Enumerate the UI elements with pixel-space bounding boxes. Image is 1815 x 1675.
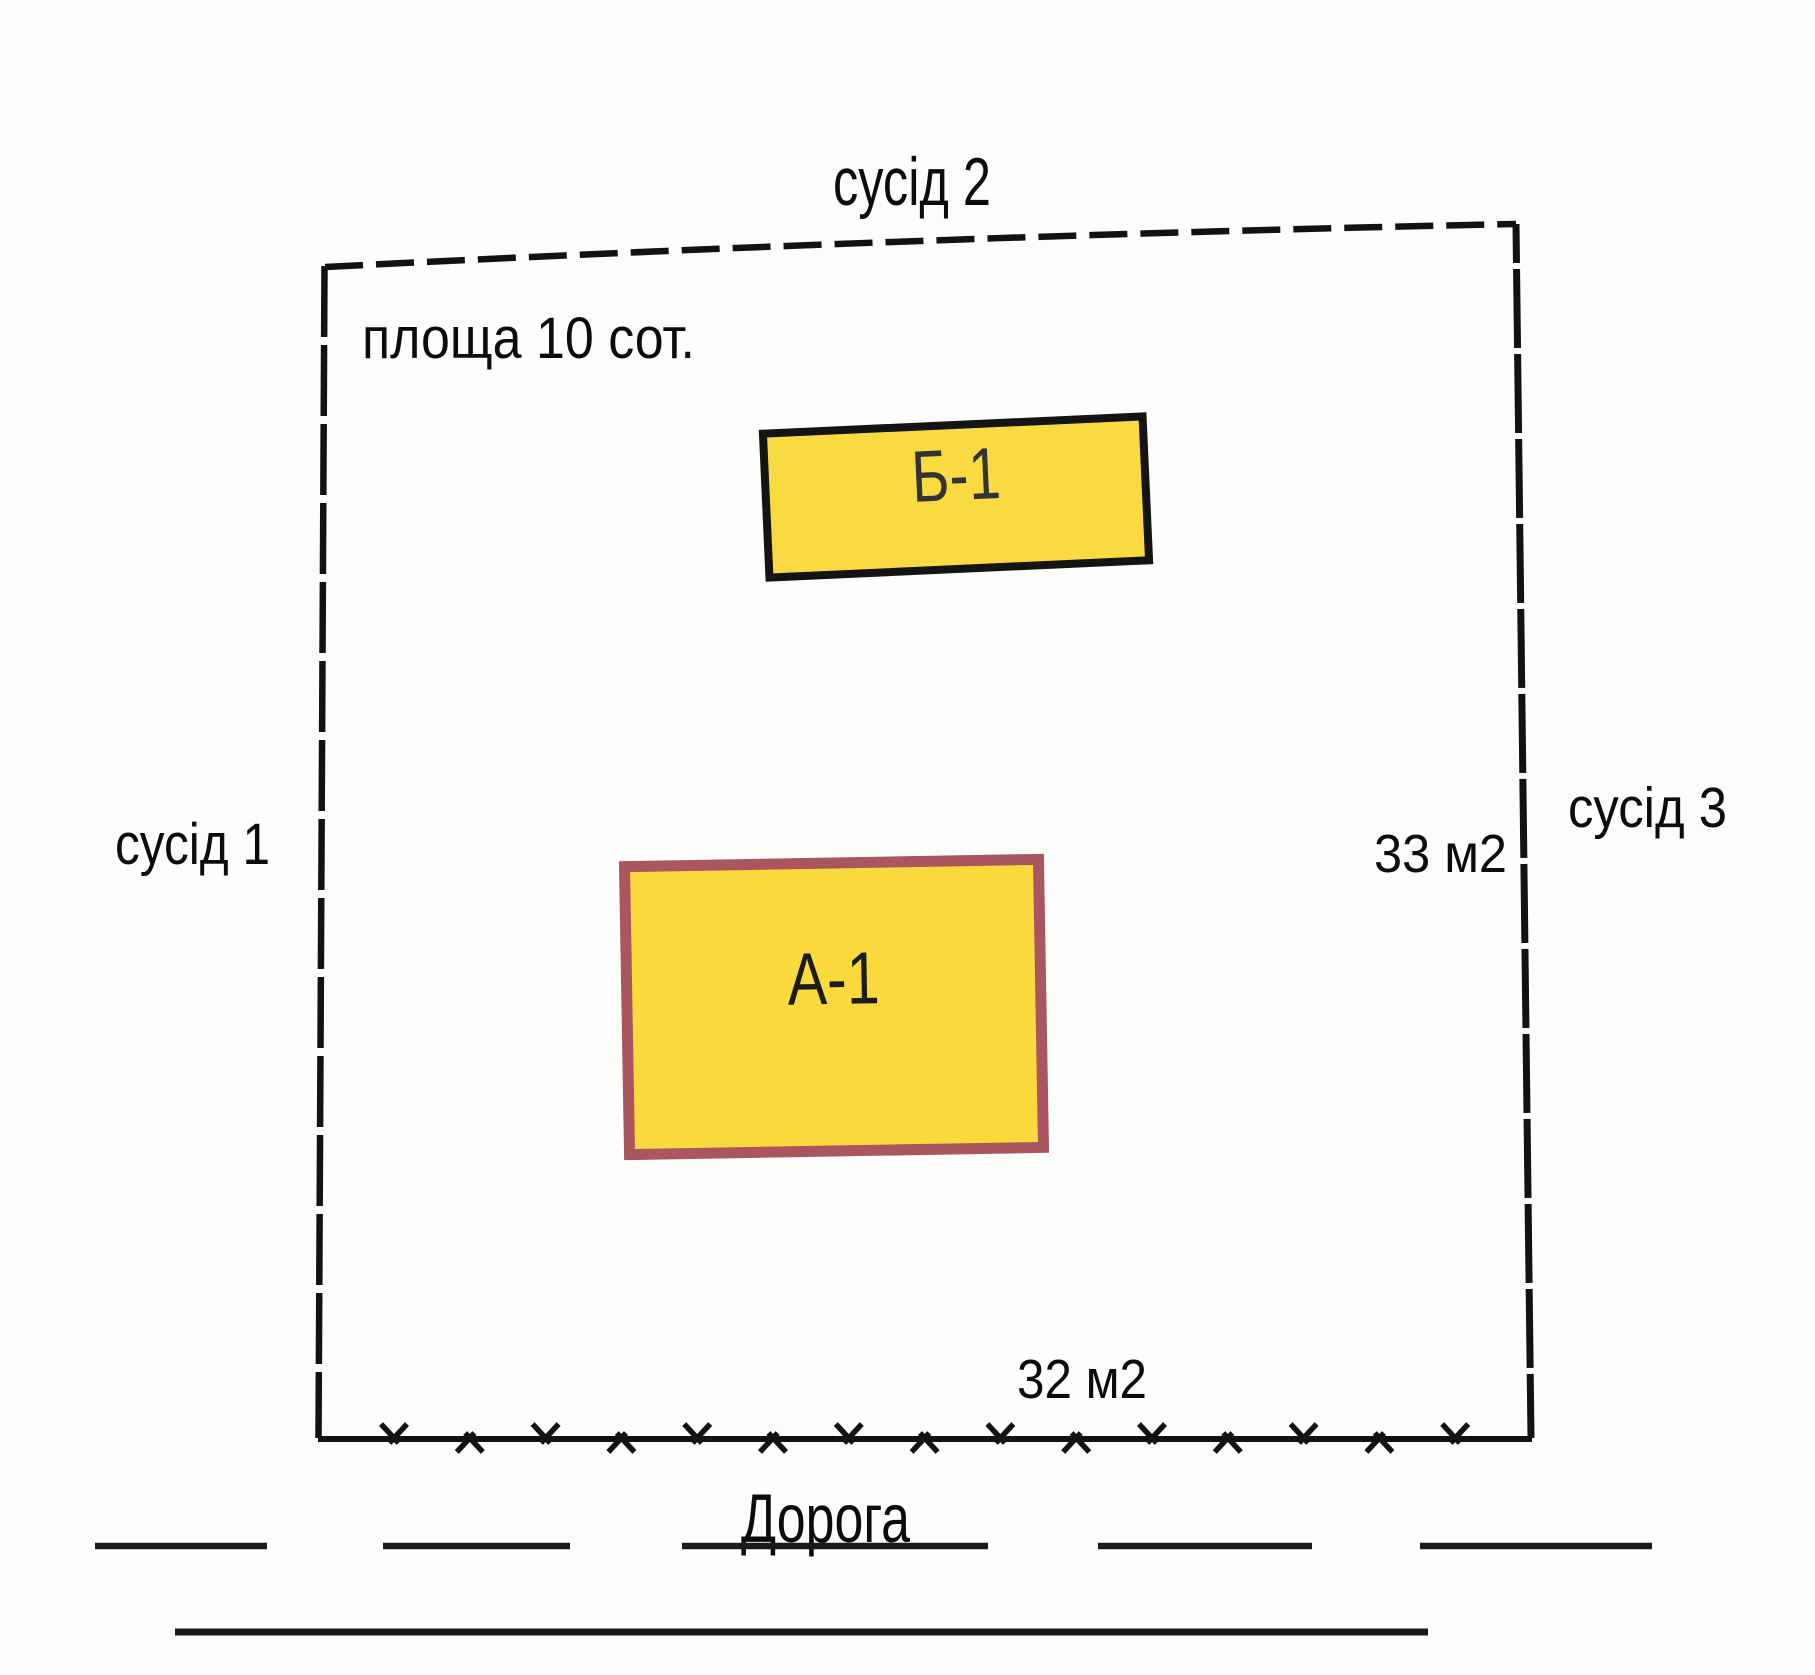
svg-text:33 м2: 33 м2 [1374, 824, 1507, 884]
svg-text:Б-1: Б-1 [910, 433, 1003, 518]
svg-text:32 м2: 32 м2 [1017, 1348, 1147, 1410]
svg-text:сусід 1: сусід 1 [115, 812, 270, 877]
svg-text:площа 10 сот.: площа 10 сот. [362, 306, 695, 371]
svg-text:сусід 2: сусід 2 [833, 144, 991, 220]
svg-text:сусід 3: сусід 3 [1568, 776, 1727, 840]
svg-text:А-1: А-1 [787, 936, 880, 1021]
